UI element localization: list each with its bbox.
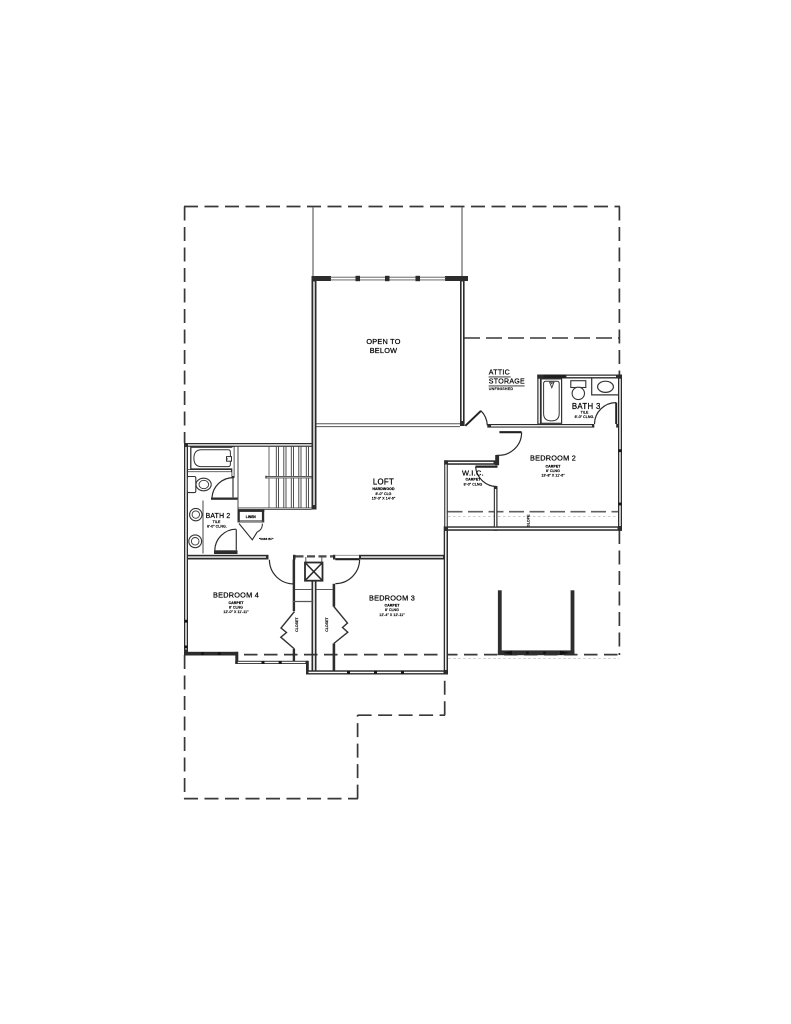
svg-text:CLOSET: CLOSET — [325, 616, 329, 631]
svg-text:BEDROOM 3: BEDROOM 3 — [369, 594, 415, 603]
svg-text:13'-8" X 11'-6": 13'-8" X 11'-6" — [541, 474, 565, 478]
svg-text:8'-0" CLNG.: 8'-0" CLNG. — [207, 524, 227, 528]
svg-text:CLOSET: CLOSET — [295, 616, 299, 631]
svg-text:STORAGE: STORAGE — [489, 379, 525, 386]
svg-text:CARPET: CARPET — [229, 601, 245, 605]
svg-text:8' CLNG: 8' CLNG — [385, 608, 399, 612]
svg-text:8'-0" CLG: 8'-0" CLG — [375, 492, 391, 496]
svg-text:BEDROOM 4: BEDROOM 4 — [213, 590, 259, 599]
svg-text:LOFT: LOFT — [373, 477, 394, 486]
svg-text:12'-4" X 12'-11": 12'-4" X 12'-11" — [379, 613, 405, 617]
svg-text:BEDROOM 2: BEDROOM 2 — [530, 454, 576, 463]
svg-text:ATTIC: ATTIC — [489, 369, 510, 376]
svg-text:TILE: TILE — [213, 520, 221, 524]
svg-text:BATH 3: BATH 3 — [572, 402, 601, 411]
svg-text:HARDWOOD: HARDWOOD — [372, 487, 395, 491]
svg-text:8' CLNG: 8' CLNG — [546, 469, 560, 473]
svg-text:CARPET: CARPET — [385, 604, 401, 608]
svg-text:LINEN: LINEN — [246, 515, 257, 519]
svg-text:SLOPE: SLOPE — [527, 514, 531, 527]
svg-text:8'-0" CLNG.: 8'-0" CLNG. — [575, 415, 595, 419]
svg-text:W.I.C.: W.I.C. — [462, 468, 484, 477]
svg-text:8' CLNG: 8' CLNG — [229, 605, 243, 609]
svg-text:8'-0" CLNG: 8'-0" CLNG — [464, 482, 483, 486]
svg-text:UNFINISHED: UNFINISHED — [489, 387, 514, 391]
svg-text:12'-0" X 11'-11": 12'-0" X 11'-11" — [223, 610, 249, 614]
svg-text:TILE: TILE — [581, 411, 589, 415]
svg-text:OPEN TO: OPEN TO — [366, 337, 400, 346]
svg-text:CARPET: CARPET — [466, 478, 482, 482]
svg-text:BELOW: BELOW — [370, 346, 398, 355]
svg-text:*5068 BF*: *5068 BF* — [259, 537, 274, 541]
svg-text:CARPET: CARPET — [546, 464, 562, 468]
svg-text:15'-0" X 14'-6": 15'-0" X 14'-6" — [372, 497, 396, 501]
